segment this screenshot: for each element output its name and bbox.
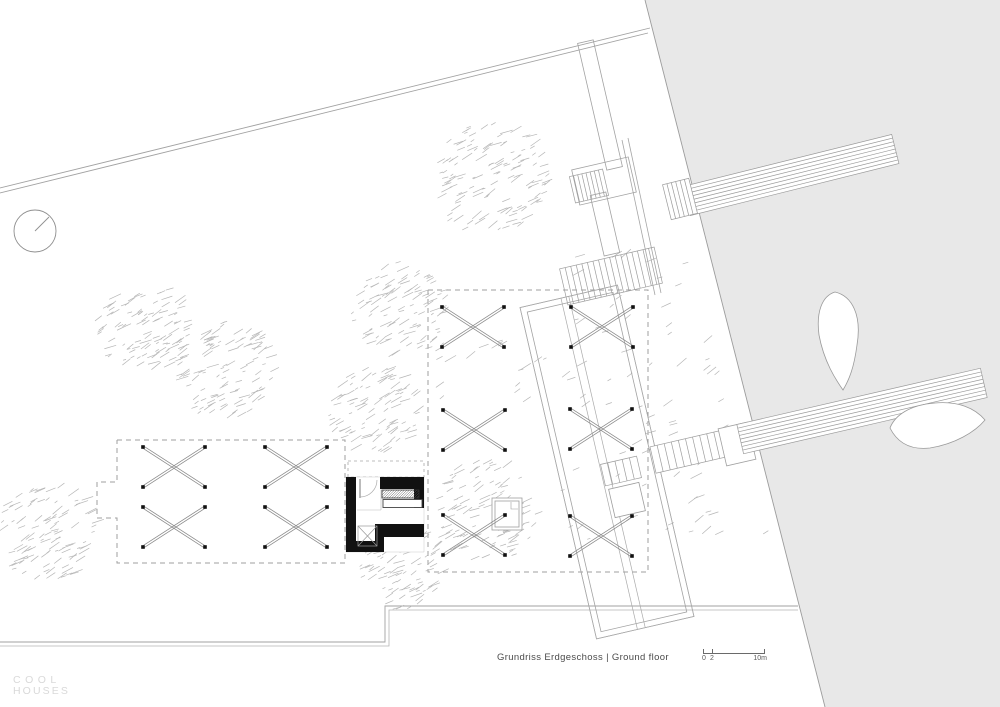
shade-marker [440,305,506,349]
walkway-upper [578,40,623,170]
stair-landing-north [572,157,637,205]
tree [436,460,542,560]
site-boundary-bottom-inner [0,610,798,646]
shade-marker [263,445,329,489]
shade-marker [263,505,329,549]
tree [175,321,279,418]
scale-label-2: 2 [710,655,714,662]
scale-label-0: 0 [702,655,706,662]
floor-plan-page: Grundriss Erdgeschoss | Ground floor 0 2… [0,0,1000,707]
terrace-zone-east-dashed [428,290,648,572]
tree [0,483,104,579]
shade-marker [141,445,207,489]
scale-tick [764,649,765,653]
scale-bar-labels: 0 2 10m [703,654,765,663]
kiosk-wall-left [346,477,356,552]
site-plan-drawing [0,0,1000,707]
kiosk-counter [383,500,422,508]
tree [351,261,448,356]
scale-tick [703,649,704,653]
kiosk-wall-bottom [346,541,384,552]
shade-marker [441,408,507,452]
site-boundary-top-outer [0,28,650,188]
logo-line-houses: HOUSES [13,686,70,697]
retaining-line [628,138,661,293]
north-symbol-needle [35,217,49,231]
drawing-title: Grundriss Erdgeschoss | Ground floor [497,652,669,663]
scale-label-10m: 10m [753,655,767,662]
site-boundary-bottom-outer [0,606,798,642]
retaining-line [622,140,655,295]
scale-bar: 0 2 10m [703,649,765,663]
small-pavilion [492,498,522,530]
shade-marker [568,407,634,451]
tree [95,288,192,370]
pavilion-square [609,482,646,517]
shade-marker [141,505,207,549]
site-boundary-top-inner [0,33,648,193]
water-area [645,0,1000,707]
tree [437,122,552,229]
canopy-dashed [348,461,424,477]
cool-houses-logo: COOL HOUSES [13,675,70,697]
scale-tick [712,649,713,653]
